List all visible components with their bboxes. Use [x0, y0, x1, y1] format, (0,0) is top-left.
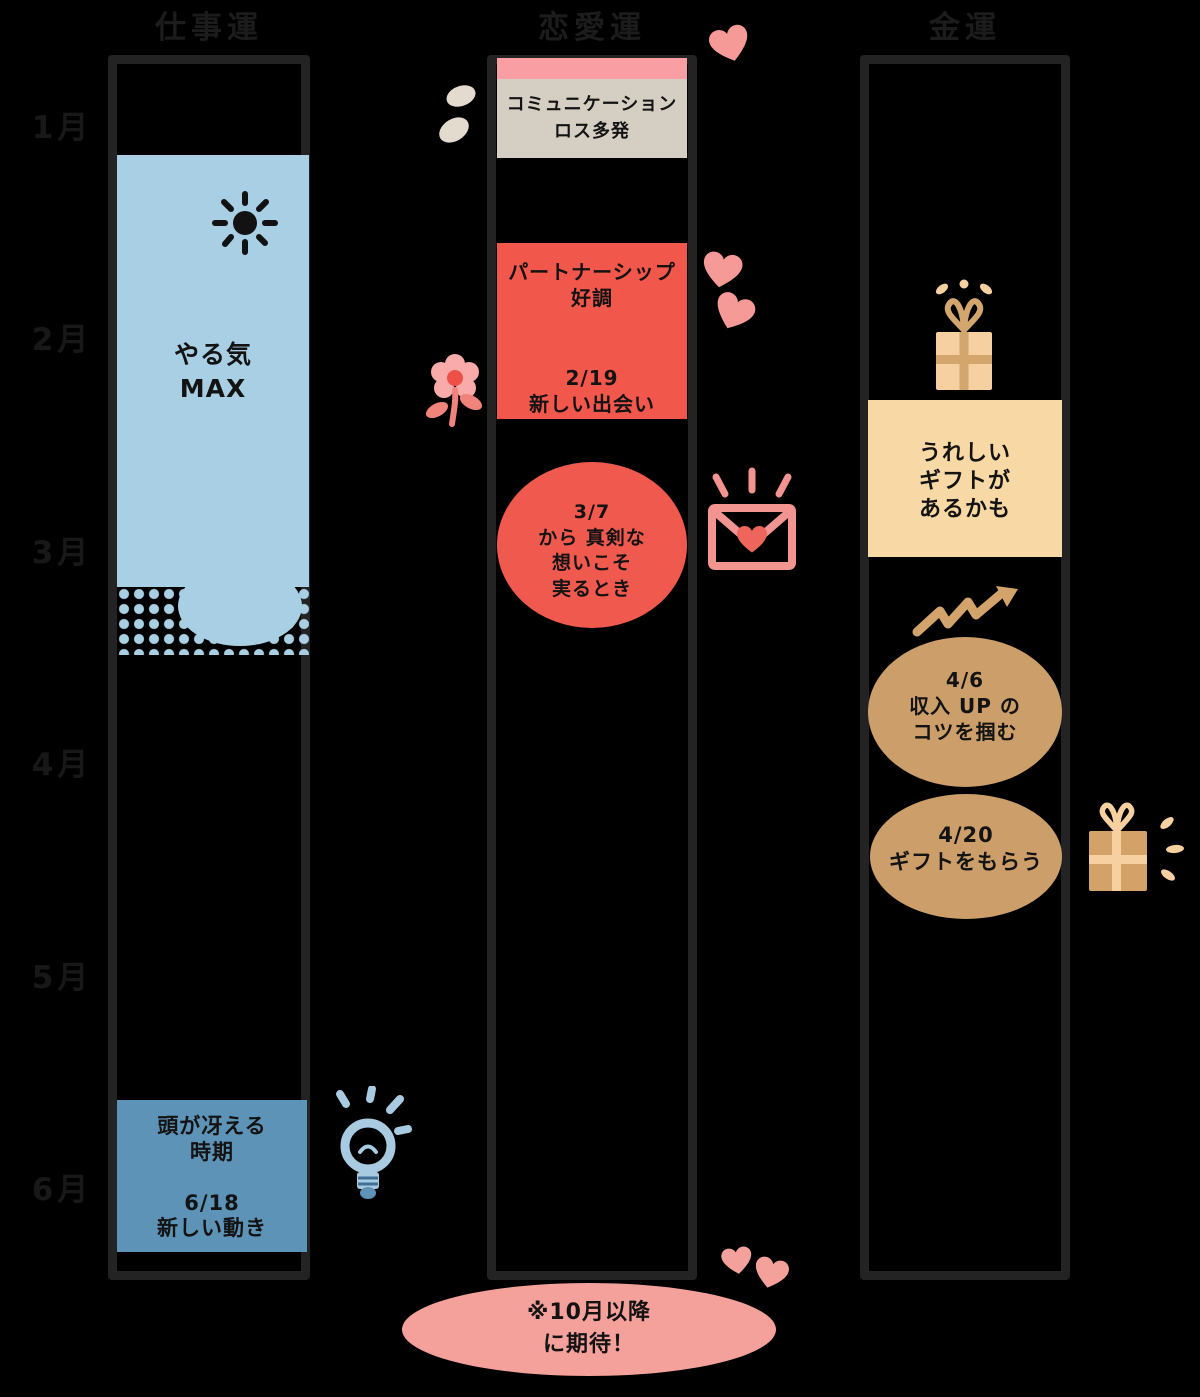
love-column-title: 恋愛運	[487, 8, 697, 48]
gift-icon	[1083, 793, 1185, 897]
month-label-apr: 4月	[24, 739, 100, 784]
trend-up-arrow-icon	[912, 584, 1024, 639]
month-label-jan: 1月	[24, 102, 100, 147]
heart-icon	[703, 19, 756, 70]
flower-icon	[424, 352, 486, 432]
gift-icon	[928, 278, 1000, 393]
month-label-may: 5月	[24, 952, 100, 997]
work-column-title: 仕事運	[108, 8, 310, 48]
money-april-text-2: 4/20 ギフトをもらう	[870, 822, 1062, 877]
love-january-text: コミュニケーション ロス多発	[497, 91, 687, 145]
sparkle-drops-icon	[433, 80, 481, 150]
month-label-jun: 6月	[24, 1164, 100, 1209]
money-column-title: 金運	[860, 8, 1070, 48]
love-january-strip	[497, 58, 687, 79]
money-gift-text: うれしい ギフトが あるかも	[868, 440, 1062, 524]
heart-icon	[706, 285, 762, 339]
sun-icon	[208, 186, 282, 260]
work-motivation-block-wave-edge	[178, 566, 302, 646]
fortune-timeline: 仕事運 恋愛運 金運 1月 2月 3月 4月 5月 6月 やる気 MAX	[0, 0, 1200, 1397]
work-june-text: 頭が冴える 時期 6/18 新しい動き	[117, 1114, 307, 1242]
month-label-feb: 2月	[24, 314, 100, 359]
footer-note-text: ※10月以降 に期待！	[402, 1297, 776, 1361]
money-april-text-1: 4/6 収入 UP の コツを掴む	[868, 667, 1062, 745]
lightbulb-icon	[326, 1086, 414, 1206]
month-label-mar: 3月	[24, 527, 100, 572]
heart-icon	[748, 1252, 793, 1294]
work-motivation-text: やる気 MAX	[117, 338, 309, 406]
love-february-text: パートナーシップ 好調 2/19 新しい出会い	[497, 259, 687, 417]
love-march-text: 3/7 から 真剣な 想いこそ 実るとき	[497, 500, 687, 603]
love-column-outline	[487, 55, 697, 1280]
love-letter-icon	[703, 464, 801, 576]
